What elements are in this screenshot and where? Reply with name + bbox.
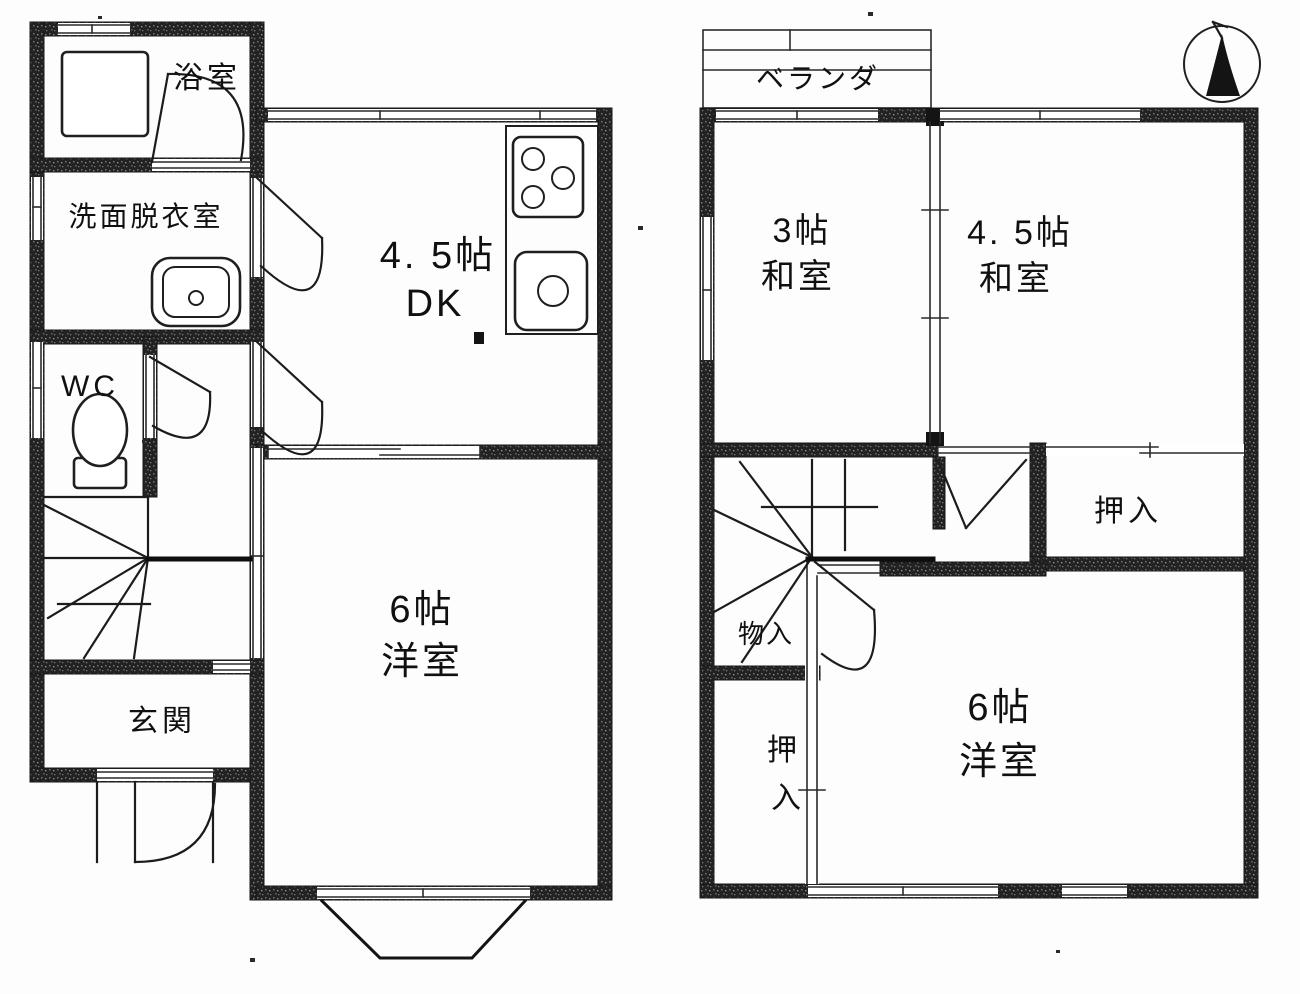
jp45-name-label: 和室 [979, 260, 1053, 298]
bath-label: 浴室 [173, 62, 241, 95]
window [58, 23, 130, 35]
toilet [73, 394, 127, 488]
floor2-plan: ベランダ 3帖 和室 4. 5帖 和室 押入 物入 押 入 6帖 洋室 [700, 22, 1260, 898]
western1-name-label: 洋室 [381, 641, 463, 683]
door-opening [213, 661, 250, 673]
door-opening [152, 159, 250, 171]
wall [700, 443, 938, 457]
floor1-stairs [44, 497, 250, 658]
window [808, 885, 998, 897]
floor1-plan: 浴室 洗面脱衣室 WC 玄関 4. 5帖 DK 6帖 洋室 [30, 22, 612, 958]
wall [933, 457, 945, 529]
window [1062, 885, 1127, 897]
door-opening [938, 447, 1030, 453]
jp45-size-label: 4. 5帖 [967, 214, 1073, 252]
wall [1030, 443, 1046, 571]
washroom-dk-door-swing [257, 178, 322, 290]
window [317, 887, 530, 899]
closet-left-label-bottom: 入 [771, 782, 805, 815]
western2-size-label: 6帖 [967, 687, 1032, 729]
western2-name-label: 洋室 [959, 741, 1041, 783]
wc-door-swing [150, 357, 210, 438]
window [716, 109, 878, 121]
room-partition-sliding [922, 108, 948, 446]
dk-size-label: 4. 5帖 [380, 235, 496, 277]
wall [700, 666, 820, 680]
kitchen-counter [506, 126, 598, 334]
bathtub [62, 52, 148, 136]
window [268, 109, 596, 121]
wall [1244, 108, 1258, 898]
north-arrow-icon [1184, 22, 1260, 102]
gas-outlet-mark [474, 332, 484, 344]
sink [515, 252, 587, 330]
veranda-label: ベランダ [756, 63, 880, 94]
window [31, 177, 43, 240]
western1-size-label: 6帖 [389, 589, 454, 631]
floor1-doors [135, 74, 322, 862]
window [940, 109, 1140, 121]
sliding-door [1046, 443, 1244, 457]
floor2-labels: ベランダ 3帖 和室 4. 5帖 和室 押入 物入 押 入 6帖 洋室 [738, 63, 1162, 815]
closet-left-label-top: 押 [767, 734, 801, 767]
wc-label: WC [61, 370, 119, 403]
hall-japanese-room-door [938, 460, 1026, 528]
entrance-label: 玄関 [128, 705, 196, 738]
door-opening [251, 178, 263, 277]
closet-right-label: 押入 [1094, 495, 1162, 528]
washroom-label: 洗面脱衣室 [68, 201, 223, 232]
wall [880, 562, 1046, 576]
storage-label: 物入 [738, 619, 794, 649]
floorplan-page: 浴室 洗面脱衣室 WC 玄関 4. 5帖 DK 6帖 洋室 [0, 0, 1300, 994]
washbasin [152, 258, 240, 326]
jp3-name-label: 和室 [761, 258, 835, 296]
hall-western-room-door-swing [815, 562, 875, 670]
dk-name-label: DK [406, 283, 465, 325]
wall [598, 108, 612, 900]
bay-window [322, 901, 525, 958]
window [701, 217, 713, 360]
window [31, 342, 43, 438]
door-opening [97, 769, 213, 781]
entrance-door-swing [135, 782, 215, 862]
stove [513, 137, 583, 217]
jp3-size-label: 3帖 [773, 212, 832, 250]
door-opening [251, 342, 263, 427]
floorplan-canvas: 浴室 洗面脱衣室 WC 玄関 4. 5帖 DK 6帖 洋室 [0, 0, 1300, 994]
sliding-partition [251, 448, 263, 658]
entrance-porch [97, 782, 213, 862]
closet-sliding-wall [799, 562, 825, 884]
sliding-door [268, 446, 480, 458]
hall-dk-door-swing [257, 342, 322, 454]
wall [1030, 557, 1244, 571]
